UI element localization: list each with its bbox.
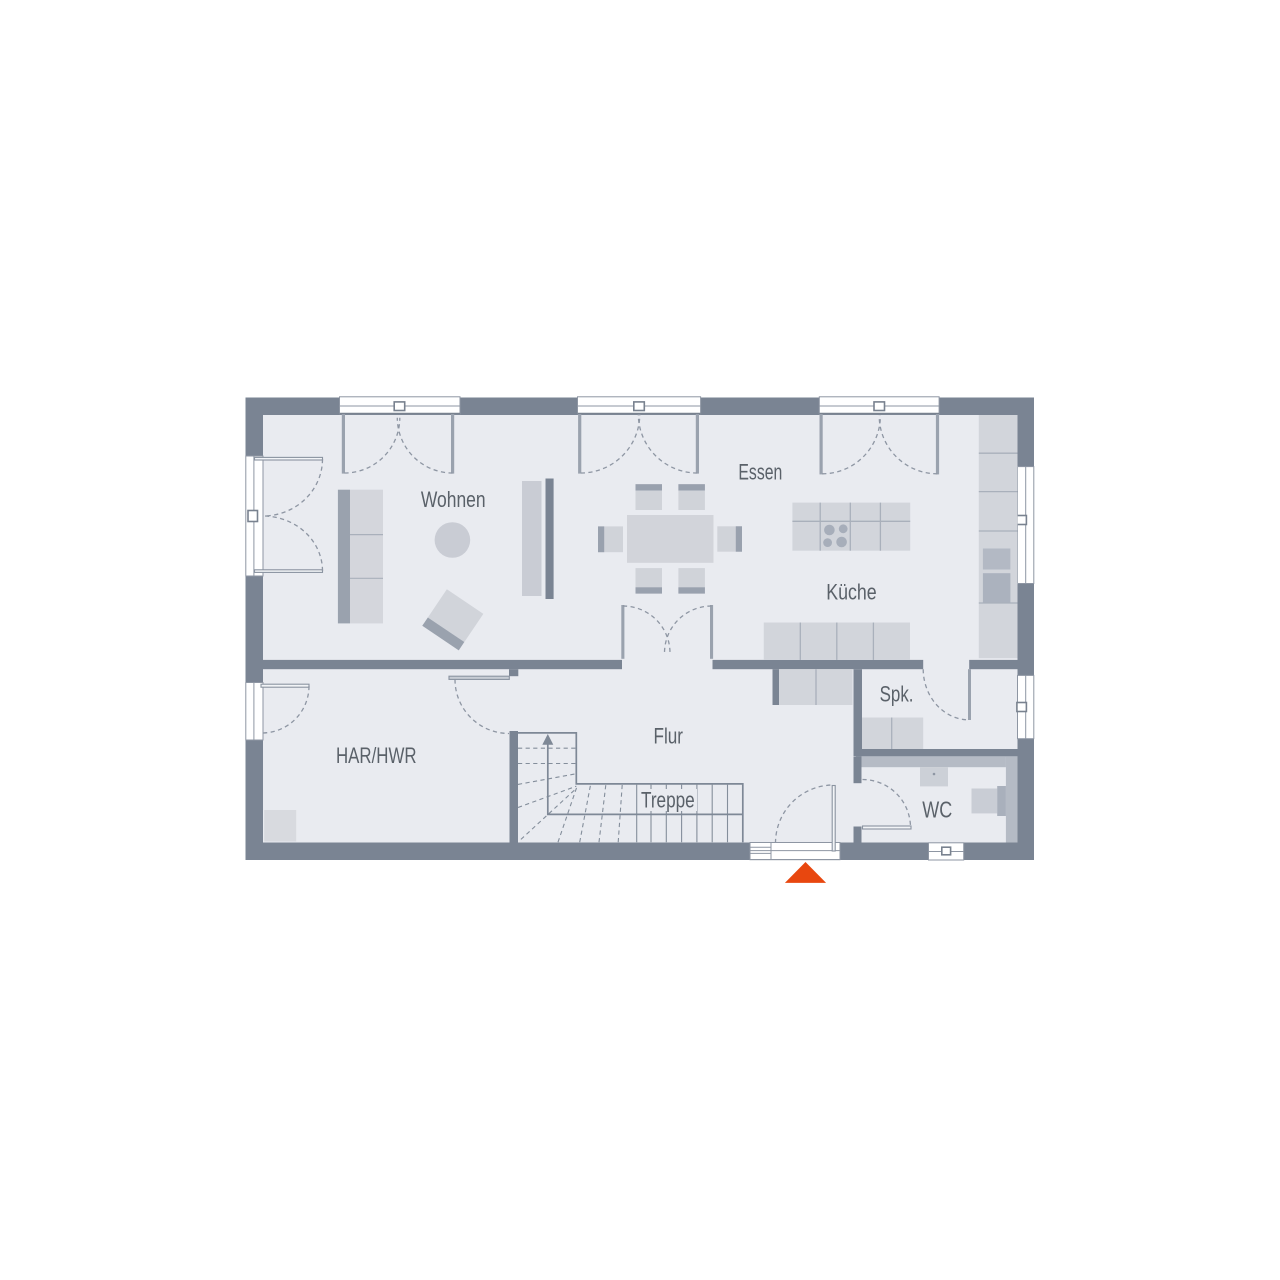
svg-text:Spk.: Spk. [880,681,914,706]
svg-text:Essen: Essen [738,459,782,484]
svg-text:HAR/HWR: HAR/HWR [336,743,417,768]
svg-text:Treppe: Treppe [641,788,695,813]
svg-text:Küche: Küche [826,580,876,605]
svg-text:WC: WC [922,797,952,823]
svg-text:Wohnen: Wohnen [421,487,486,512]
svg-text:Flur: Flur [654,724,684,749]
